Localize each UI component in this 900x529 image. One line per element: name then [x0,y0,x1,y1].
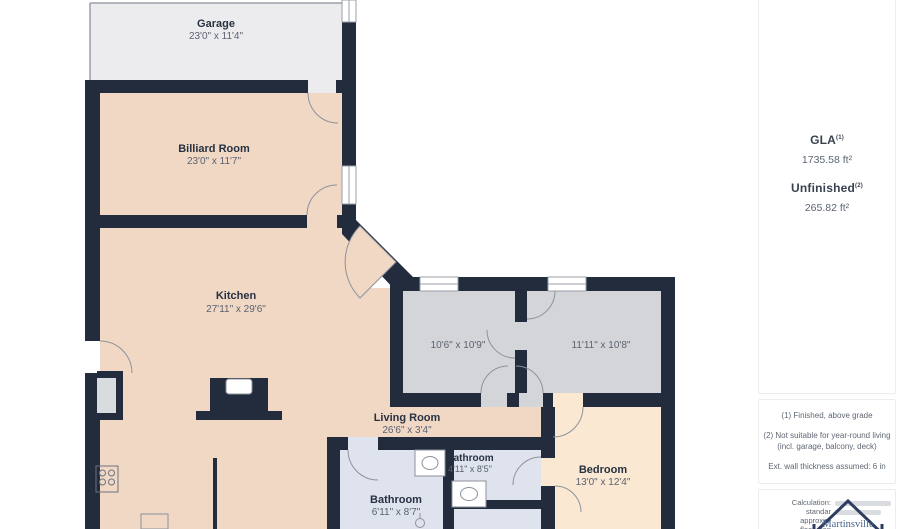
window [420,277,458,291]
footnotes-card: (1) Finished, above grade (2) Not suitab… [758,399,896,484]
area-summary-card: GLA(1) 1735.58 ft² Unfinished(2) 265.82 … [758,0,896,394]
footnote-wall-thickness: Ext. wall thickness assumed: 6 in [759,461,895,472]
wall-thin-kitchen [213,458,217,529]
floorplan-report-screen: Garage 23'0" x 11'4" Billiard Room 23'0"… [0,0,900,529]
gla-value: 1735.58 ft² [759,154,895,166]
room-label-bedroom: Bedroom [579,464,628,476]
wall-bathroom-left [327,437,340,529]
room-label-bath-big: Bathroom [370,494,422,506]
room-dims-gray-right: 11'11" x 10'8" [572,340,631,351]
floor-plan-area: Garage 23'0" x 11'4" Billiard Room 23'0"… [0,0,756,529]
floor-plan-drawing: Garage 23'0" x 11'4" Billiard Room 23'0"… [0,0,756,529]
room-dims-living: 26'6" x 3'4" [382,425,432,436]
room-dims-bath-big: 6'11" x 8'7" [372,507,421,518]
garage-floor [90,3,342,93]
bathroom-sink [415,450,445,476]
room-dims-kitchen: 27'11" x 29'6" [206,304,266,315]
room-dims-bath-small: 4'11" x 8'5" [448,464,492,474]
company-logo: Martinsville Henry & [804,496,892,529]
footnote-1: (1) Finished, above grade [759,410,895,421]
room-label-garage: Garage [197,18,235,30]
fireplace [97,371,123,420]
unfinished-label: Unfinished(2) [759,181,895,195]
room-dims-gray-left: 10'6" x 10'9" [431,340,486,351]
room-dims-garage: 23'0" x 11'4" [189,31,244,42]
calculation-card: Calculation: standar approxim floor plan… [758,489,896,529]
room-dims-billiard: 23'0" x 11'7" [187,156,242,167]
footnote-2-line2: (incl. garage, balcony, deck) [759,441,895,452]
room-dims-bedroom: 13'0" x 12'4" [576,477,631,488]
footnote-2-line1: (2) Not suitable for year-round living [759,430,895,441]
bathroom-sink [452,481,486,507]
gla-label: GLA(1) [759,133,895,147]
room-label-living: Living Room [374,412,441,424]
window [342,166,356,204]
window [342,0,356,22]
window [548,277,586,291]
room-label-billiard: Billiard Room [178,143,250,155]
room-label-kitchen: Kitchen [216,290,257,302]
gla-footnote-ref: (1) [836,135,844,141]
unfinished-footnote-ref: (2) [855,183,863,189]
unfinished-value: 265.82 ft² [759,202,895,214]
wall-billiard-bottom [85,215,307,228]
report-sidebar: GLA(1) 1735.58 ft² Unfinished(2) 265.82 … [756,0,900,529]
room-label-bath-small: Bathroom [446,453,493,464]
logo-text-line1: Martinsville [822,519,874,529]
wall-grayrooms-left [390,277,403,403]
wall-left-exterior [85,80,100,529]
kitchen-floor [100,215,356,529]
